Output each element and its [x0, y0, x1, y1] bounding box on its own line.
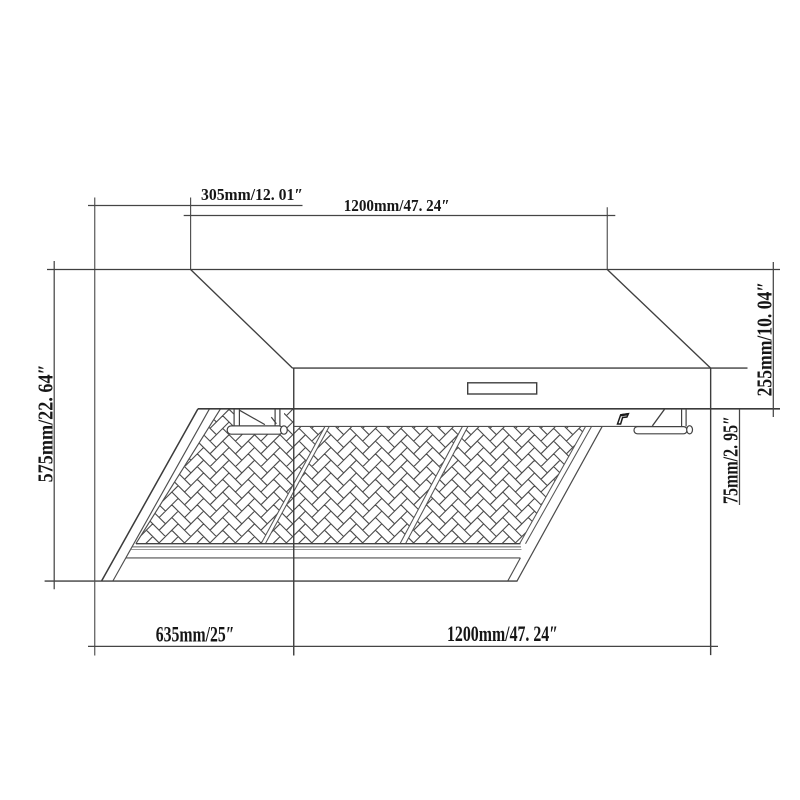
svg-text:1200mm/47. 24″: 1200mm/47. 24″ — [344, 196, 450, 215]
svg-text:255mm/10. 04″: 255mm/10. 04″ — [753, 282, 777, 397]
svg-text:305mm/12. 01″: 305mm/12. 01″ — [201, 185, 303, 204]
svg-text:1200mm/47. 24″: 1200mm/47. 24″ — [447, 621, 558, 646]
svg-text:75mm/2. 95″: 75mm/2. 95″ — [719, 416, 743, 504]
svg-text:635mm/25″: 635mm/25″ — [156, 622, 235, 647]
svg-text:575mm/22. 64″: 575mm/22. 64″ — [34, 364, 58, 482]
